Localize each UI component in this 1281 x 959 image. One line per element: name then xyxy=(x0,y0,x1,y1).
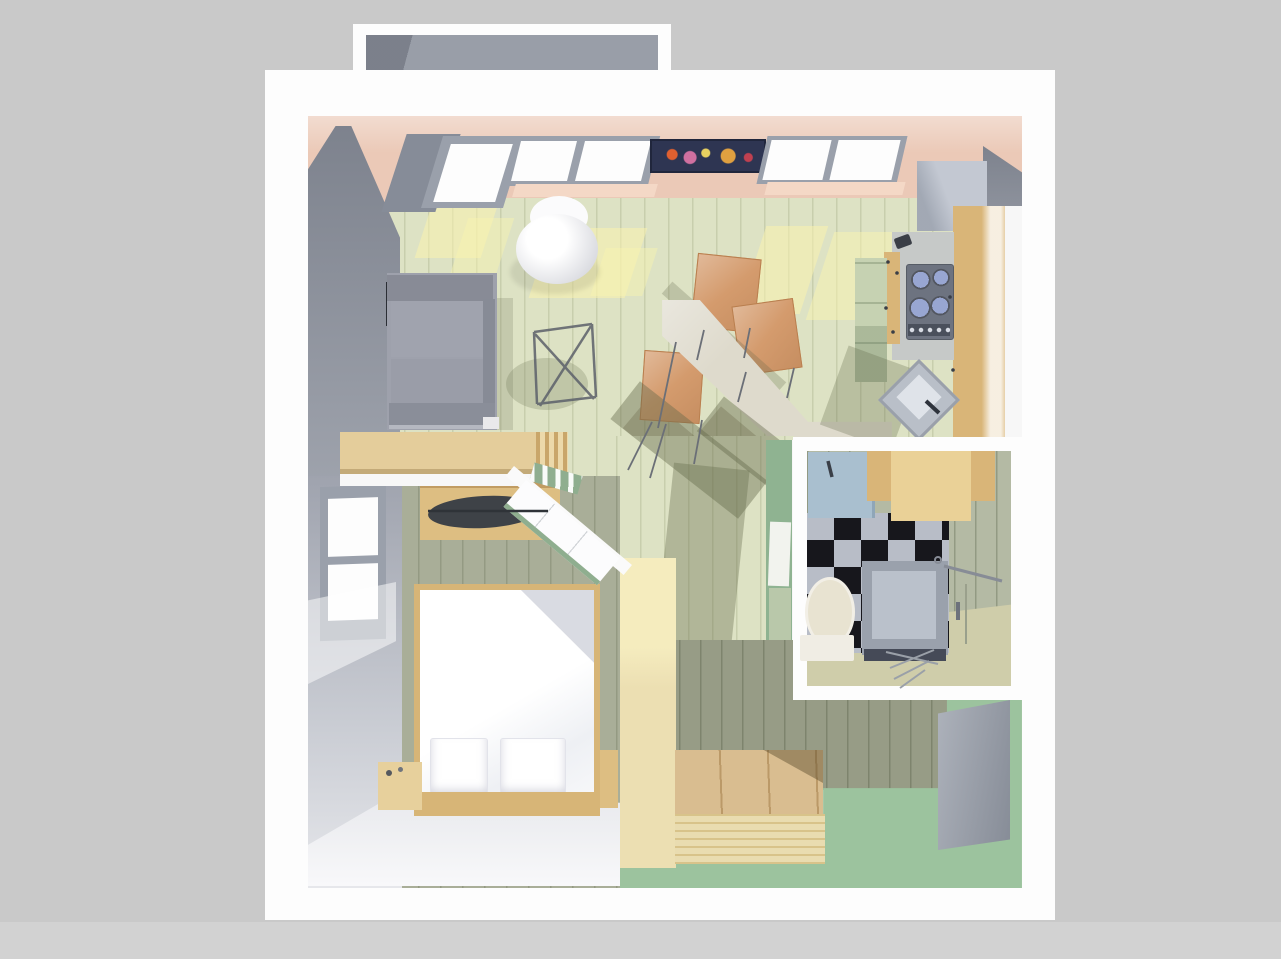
thin-details-layer xyxy=(0,0,1281,959)
drying-rack xyxy=(886,650,938,688)
chair-legs xyxy=(628,328,794,478)
kitchen-faucet xyxy=(926,401,939,413)
floorplan-render xyxy=(0,0,1281,959)
basin-faucet xyxy=(828,461,832,477)
cabinet-handles xyxy=(884,260,955,372)
bathroom-door-edge xyxy=(958,584,966,644)
towel-bar xyxy=(935,557,1002,581)
folding-stool xyxy=(534,324,596,406)
